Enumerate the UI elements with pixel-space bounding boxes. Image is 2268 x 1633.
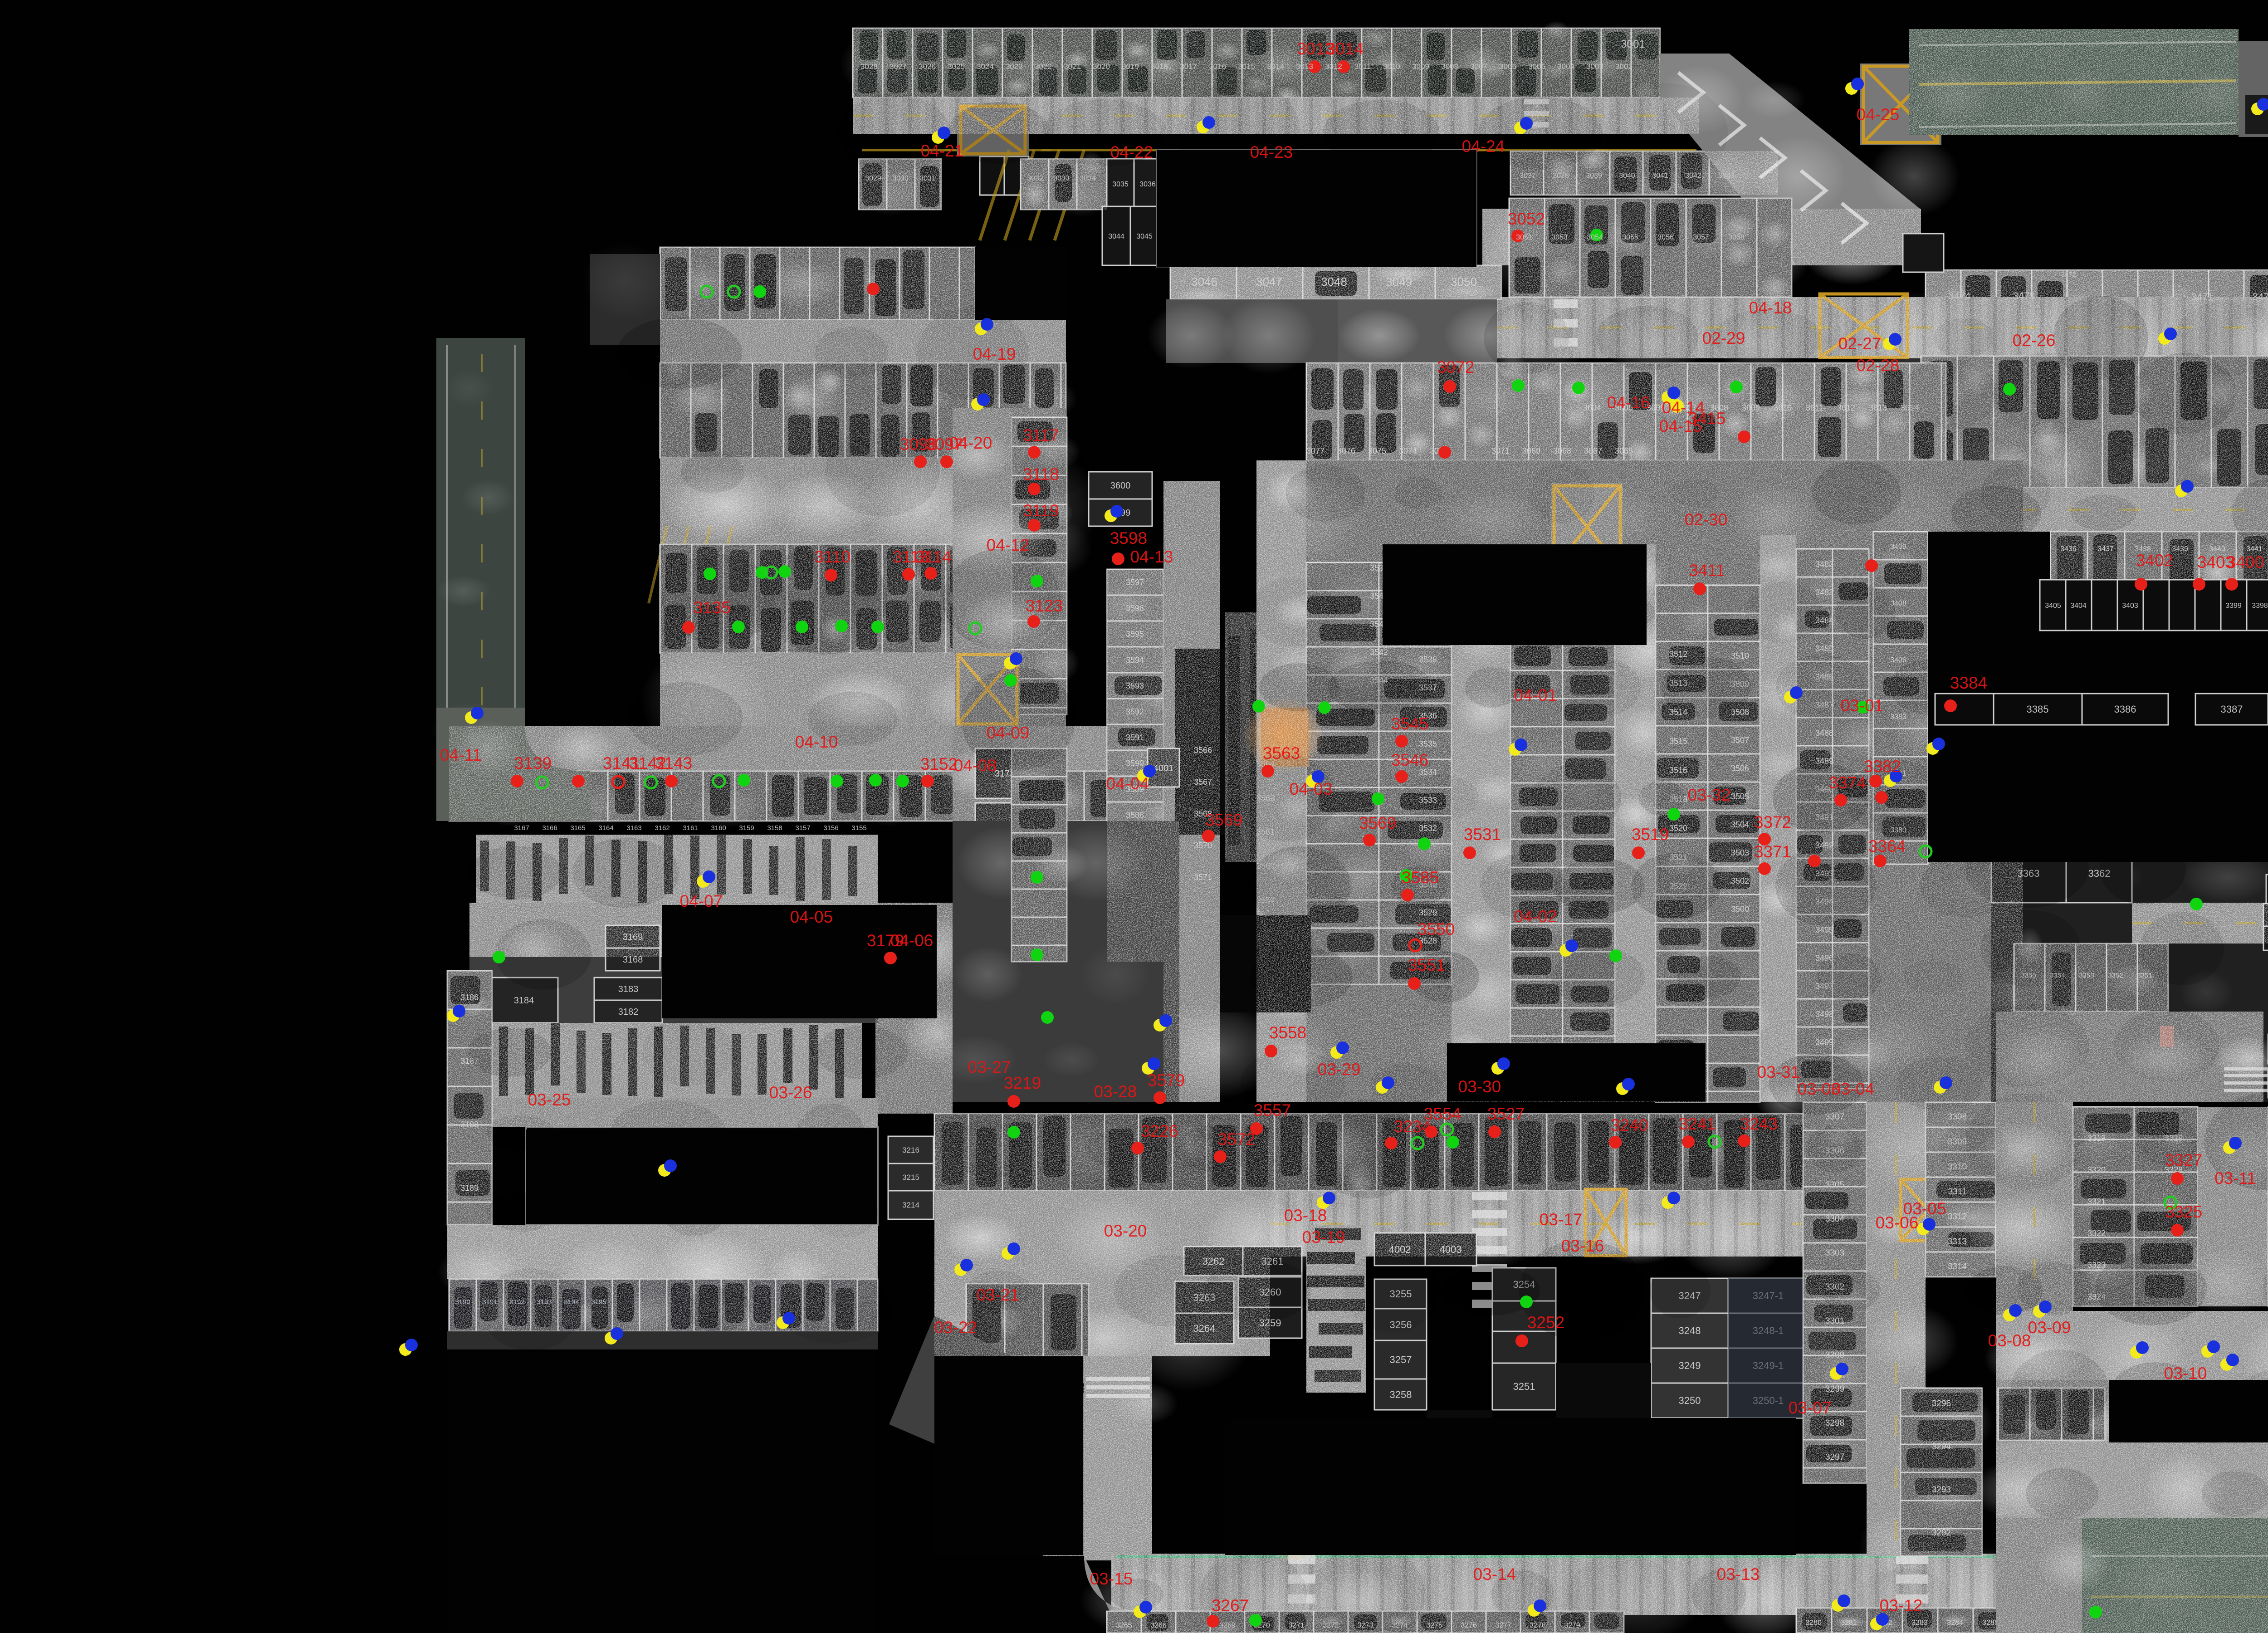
svg-text:03-22: 03-22 <box>934 1318 978 1337</box>
svg-text:3024: 3024 <box>977 62 994 71</box>
svg-text:3014: 3014 <box>1267 62 1284 71</box>
svg-text:3385: 3385 <box>2027 704 2049 715</box>
svg-text:3041: 3041 <box>1652 172 1668 180</box>
svg-text:3371: 3371 <box>1754 842 1791 861</box>
svg-text:3531: 3531 <box>1464 825 1501 844</box>
svg-text:03-21: 03-21 <box>977 1286 1020 1304</box>
svg-text:3023: 3023 <box>1006 62 1023 71</box>
svg-text:3249: 3249 <box>1679 1360 1701 1371</box>
svg-text:3123: 3123 <box>1026 596 1063 615</box>
svg-text:3474: 3474 <box>1949 290 1971 302</box>
svg-text:3470: 3470 <box>2253 291 2268 303</box>
svg-text:3012: 3012 <box>1325 62 1342 71</box>
svg-text:3546: 3546 <box>1391 751 1428 769</box>
svg-text:3001: 3001 <box>1621 38 1645 50</box>
svg-text:3036: 3036 <box>1139 181 1156 188</box>
svg-text:3057: 3057 <box>1693 234 1709 241</box>
svg-text:03-32: 03-32 <box>1688 786 1731 804</box>
svg-text:3161: 3161 <box>683 824 698 832</box>
svg-text:3563: 3563 <box>1263 744 1300 763</box>
svg-text:03-20: 03-20 <box>1104 1222 1147 1240</box>
svg-text:02-30: 02-30 <box>1685 510 1728 529</box>
svg-text:3053: 3053 <box>1551 234 1568 241</box>
svg-text:3025: 3025 <box>948 62 965 71</box>
svg-text:3252: 3252 <box>1527 1313 1564 1332</box>
svg-text:03-29: 03-29 <box>1318 1060 1361 1079</box>
svg-text:3372: 3372 <box>1754 813 1791 831</box>
svg-text:3404: 3404 <box>2070 602 2087 610</box>
svg-text:3158: 3158 <box>767 824 782 832</box>
svg-text:3216: 3216 <box>902 1146 919 1154</box>
svg-text:3527: 3527 <box>1487 1105 1525 1123</box>
svg-text:3157: 3157 <box>795 824 810 832</box>
svg-text:3226: 3226 <box>1141 1122 1178 1140</box>
svg-text:3162: 3162 <box>655 824 670 832</box>
svg-text:3267: 3267 <box>1212 1596 1249 1615</box>
svg-text:3003: 3003 <box>1586 62 1603 71</box>
svg-text:3114: 3114 <box>915 548 952 566</box>
svg-text:3167: 3167 <box>514 824 529 832</box>
svg-text:3551: 3551 <box>1408 956 1445 974</box>
svg-text:3214: 3214 <box>902 1201 919 1209</box>
svg-text:3411: 3411 <box>1689 561 1725 580</box>
svg-text:3398: 3398 <box>2252 602 2268 610</box>
svg-text:04-18: 04-18 <box>1749 298 1792 317</box>
svg-text:3399: 3399 <box>2225 602 2242 610</box>
svg-text:3139: 3139 <box>514 754 552 772</box>
svg-text:3243: 3243 <box>1740 1115 1778 1133</box>
svg-text:04-23: 04-23 <box>1250 143 1293 161</box>
svg-text:3052: 3052 <box>1508 210 1545 228</box>
svg-text:3569: 3569 <box>1205 811 1242 829</box>
svg-text:04-19: 04-19 <box>973 345 1016 363</box>
svg-text:04-08: 04-08 <box>954 756 997 775</box>
svg-text:3019: 3019 <box>1122 62 1139 71</box>
svg-text:3027: 3027 <box>890 62 907 71</box>
svg-text:3234: 3234 <box>1394 1117 1431 1136</box>
svg-text:3600: 3600 <box>1110 481 1131 491</box>
svg-text:3117: 3117 <box>1023 426 1059 445</box>
svg-text:3135: 3135 <box>694 598 731 617</box>
svg-text:3031: 3031 <box>919 175 936 182</box>
svg-text:3152: 3152 <box>920 755 958 773</box>
svg-text:03-08: 03-08 <box>1988 1331 2031 1350</box>
svg-text:3183: 3183 <box>618 984 639 994</box>
svg-text:3473: 3473 <box>2013 290 2035 302</box>
svg-text:3034: 3034 <box>1080 175 1096 182</box>
svg-text:3017: 3017 <box>1180 62 1197 71</box>
svg-text:3028: 3028 <box>860 62 878 71</box>
svg-text:02-28: 02-28 <box>1857 356 1900 375</box>
svg-text:3165: 3165 <box>570 824 585 832</box>
svg-text:3038: 3038 <box>1553 172 1569 180</box>
svg-text:03-13: 03-13 <box>1717 1565 1760 1584</box>
svg-text:3386: 3386 <box>2114 704 2136 715</box>
svg-text:3163: 3163 <box>626 824 641 832</box>
svg-text:04-01: 04-01 <box>1514 686 1557 704</box>
svg-text:03-19: 03-19 <box>1302 1228 1345 1247</box>
svg-text:3156: 3156 <box>823 824 838 832</box>
svg-text:3550: 3550 <box>1417 920 1455 939</box>
svg-text:04-07: 04-07 <box>680 892 723 910</box>
svg-text:3044: 3044 <box>1108 233 1124 240</box>
svg-text:3055: 3055 <box>1622 234 1638 241</box>
svg-text:04-05: 04-05 <box>790 908 833 926</box>
svg-text:02-29: 02-29 <box>1702 329 1745 347</box>
svg-text:3013: 3013 <box>1296 62 1313 71</box>
svg-text:3051: 3051 <box>1516 234 1532 241</box>
svg-text:02-26: 02-26 <box>2013 331 2056 350</box>
svg-text:03-14: 03-14 <box>1473 1565 1516 1584</box>
svg-text:03-06: 03-06 <box>1876 1213 1919 1232</box>
svg-text:3545: 3545 <box>1391 714 1428 733</box>
svg-text:3364: 3364 <box>1868 837 1906 856</box>
svg-text:04-25: 04-25 <box>1857 105 1900 124</box>
svg-text:03-07: 03-07 <box>1789 1398 1832 1417</box>
svg-text:3032: 3032 <box>1027 175 1043 182</box>
svg-text:3384: 3384 <box>1950 674 1987 692</box>
svg-text:04-04: 04-04 <box>1106 774 1149 793</box>
svg-text:3072: 3072 <box>1437 358 1474 376</box>
svg-text:3405: 3405 <box>2045 602 2061 610</box>
svg-text:3016: 3016 <box>1209 62 1226 71</box>
svg-text:3026: 3026 <box>919 62 936 71</box>
svg-text:3002: 3002 <box>1615 62 1633 71</box>
svg-text:3020: 3020 <box>1093 62 1110 71</box>
svg-text:3400: 3400 <box>2227 553 2264 572</box>
svg-text:3557: 3557 <box>1254 1101 1291 1120</box>
svg-text:3007: 3007 <box>1470 62 1487 71</box>
svg-text:03-31: 03-31 <box>1757 1063 1800 1081</box>
svg-text:3572: 3572 <box>1218 1130 1255 1149</box>
svg-text:3039: 3039 <box>1586 172 1602 180</box>
svg-text:3472: 3472 <box>2061 271 2076 279</box>
svg-text:04-13: 04-13 <box>1130 548 1173 566</box>
svg-text:03-25: 03-25 <box>528 1090 571 1109</box>
svg-text:04-20: 04-20 <box>949 434 992 452</box>
svg-text:3058: 3058 <box>1728 234 1745 241</box>
svg-text:03-17: 03-17 <box>1540 1210 1583 1229</box>
svg-text:3251: 3251 <box>1513 1381 1535 1392</box>
svg-text:3008: 3008 <box>1441 62 1458 71</box>
svg-text:3030: 3030 <box>892 175 909 182</box>
svg-text:3035: 3035 <box>1112 181 1129 188</box>
svg-text:04-22: 04-22 <box>1110 143 1154 161</box>
svg-text:3387: 3387 <box>2221 704 2243 715</box>
svg-text:3037: 3037 <box>1520 172 1536 180</box>
svg-text:04-02: 04-02 <box>1514 907 1557 926</box>
svg-text:3009: 3009 <box>1412 62 1429 71</box>
svg-text:04-15: 04-15 <box>1659 417 1702 435</box>
svg-text:04-09: 04-09 <box>987 724 1030 742</box>
svg-text:03-30: 03-30 <box>1458 1077 1501 1096</box>
svg-text:3184: 3184 <box>514 996 534 1006</box>
svg-text:3011: 3011 <box>1354 62 1371 71</box>
svg-text:3585: 3585 <box>1402 868 1439 887</box>
svg-text:3056: 3056 <box>1657 234 1674 241</box>
svg-text:3579: 3579 <box>1148 1071 1185 1090</box>
svg-text:03-11: 03-11 <box>2214 1169 2256 1188</box>
svg-text:03-16: 03-16 <box>1561 1237 1604 1255</box>
svg-text:3022: 3022 <box>1035 62 1052 71</box>
svg-text:3004: 3004 <box>1557 62 1574 71</box>
svg-text:3248: 3248 <box>1679 1325 1701 1336</box>
svg-text:3043: 3043 <box>1718 172 1735 180</box>
svg-text:3033: 3033 <box>1053 175 1070 182</box>
svg-text:3598: 3598 <box>1110 529 1147 548</box>
svg-text:3143: 3143 <box>655 754 692 772</box>
svg-text:3005: 3005 <box>1528 62 1545 71</box>
svg-text:3327: 3327 <box>2165 1151 2202 1169</box>
svg-text:04-24: 04-24 <box>1462 137 1505 156</box>
svg-text:3010: 3010 <box>1383 62 1400 71</box>
svg-text:3042: 3042 <box>1685 172 1701 180</box>
svg-text:3014: 3014 <box>1326 39 1364 58</box>
svg-text:04-21: 04-21 <box>921 142 964 160</box>
svg-text:03-10: 03-10 <box>2164 1364 2207 1383</box>
svg-text:03-04: 03-04 <box>1832 1080 1875 1098</box>
svg-text:3241: 3241 <box>1679 1115 1716 1133</box>
svg-text:3219: 3219 <box>1004 1074 1041 1092</box>
svg-text:3325: 3325 <box>2165 1203 2202 1221</box>
svg-text:03-09: 03-09 <box>2028 1318 2071 1337</box>
svg-text:3159: 3159 <box>739 824 754 832</box>
svg-text:02-27: 02-27 <box>1838 334 1882 353</box>
svg-text:3215: 3215 <box>902 1173 919 1182</box>
svg-text:3118: 3118 <box>1023 465 1059 484</box>
svg-text:3164: 3164 <box>598 824 613 832</box>
svg-text:03-18: 03-18 <box>1284 1206 1327 1225</box>
svg-text:3166: 3166 <box>542 824 557 832</box>
svg-text:3569: 3569 <box>1359 814 1396 832</box>
svg-text:03-26: 03-26 <box>769 1083 812 1102</box>
svg-text:3250: 3250 <box>1679 1395 1701 1406</box>
svg-text:3160: 3160 <box>711 824 726 832</box>
svg-text:3258: 3258 <box>1390 1389 1412 1400</box>
svg-text:3382: 3382 <box>1864 757 1901 776</box>
svg-text:3374: 3374 <box>1829 773 1866 792</box>
svg-text:3040: 3040 <box>1619 172 1635 180</box>
svg-text:3240: 3240 <box>1611 1116 1648 1134</box>
svg-text:3402: 3402 <box>2136 551 2173 570</box>
svg-text:3182: 3182 <box>618 1007 639 1017</box>
svg-text:3558: 3558 <box>1269 1023 1306 1042</box>
svg-text:3155: 3155 <box>851 824 866 832</box>
svg-text:3403: 3403 <box>2122 602 2138 610</box>
svg-text:3018: 3018 <box>1151 62 1168 71</box>
svg-text:3021: 3021 <box>1064 62 1081 71</box>
svg-text:3015: 3015 <box>1238 62 1255 71</box>
svg-text:04-10: 04-10 <box>795 733 838 751</box>
svg-text:03-15: 03-15 <box>1090 1569 1133 1588</box>
svg-text:03-28: 03-28 <box>1094 1082 1137 1101</box>
svg-text:3110: 3110 <box>814 548 850 566</box>
svg-text:3519: 3519 <box>1632 825 1669 844</box>
svg-text:04-16: 04-16 <box>1607 393 1650 412</box>
svg-text:3119: 3119 <box>1023 501 1059 520</box>
svg-text:04-11: 04-11 <box>440 746 482 764</box>
svg-text:03-12: 03-12 <box>1880 1596 1923 1615</box>
svg-text:3179: 3179 <box>867 931 904 950</box>
svg-text:04-12: 04-12 <box>987 536 1030 554</box>
svg-text:3045: 3045 <box>1136 233 1153 240</box>
svg-text:03-01: 03-01 <box>1841 696 1884 715</box>
svg-text:3006: 3006 <box>1499 62 1516 71</box>
svg-text:3054: 3054 <box>1587 234 1603 241</box>
svg-text:3257: 3257 <box>1390 1354 1412 1365</box>
svg-text:04-14: 04-14 <box>1662 398 1705 417</box>
svg-text:04-03: 04-03 <box>1290 780 1333 798</box>
svg-text:3471: 3471 <box>2191 291 2214 303</box>
svg-text:3029: 3029 <box>865 175 881 182</box>
